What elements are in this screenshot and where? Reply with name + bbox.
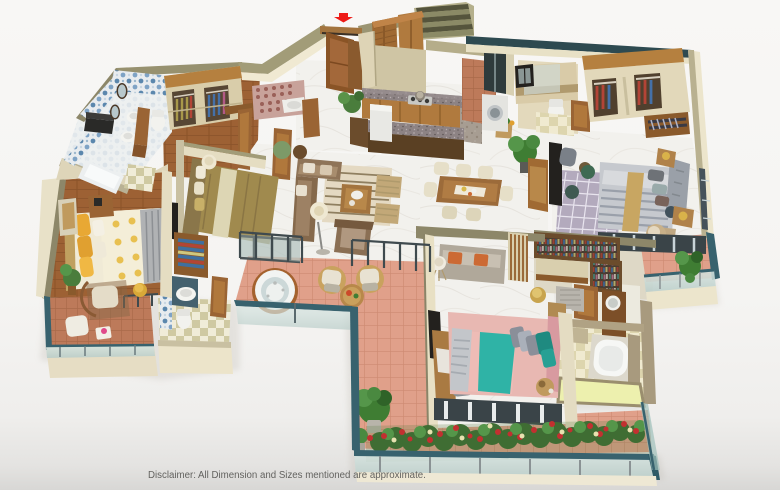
svg-text:Disclaimer: All Dimension and: Disclaimer: All Dimension and Sizes ment… — [148, 470, 426, 481]
